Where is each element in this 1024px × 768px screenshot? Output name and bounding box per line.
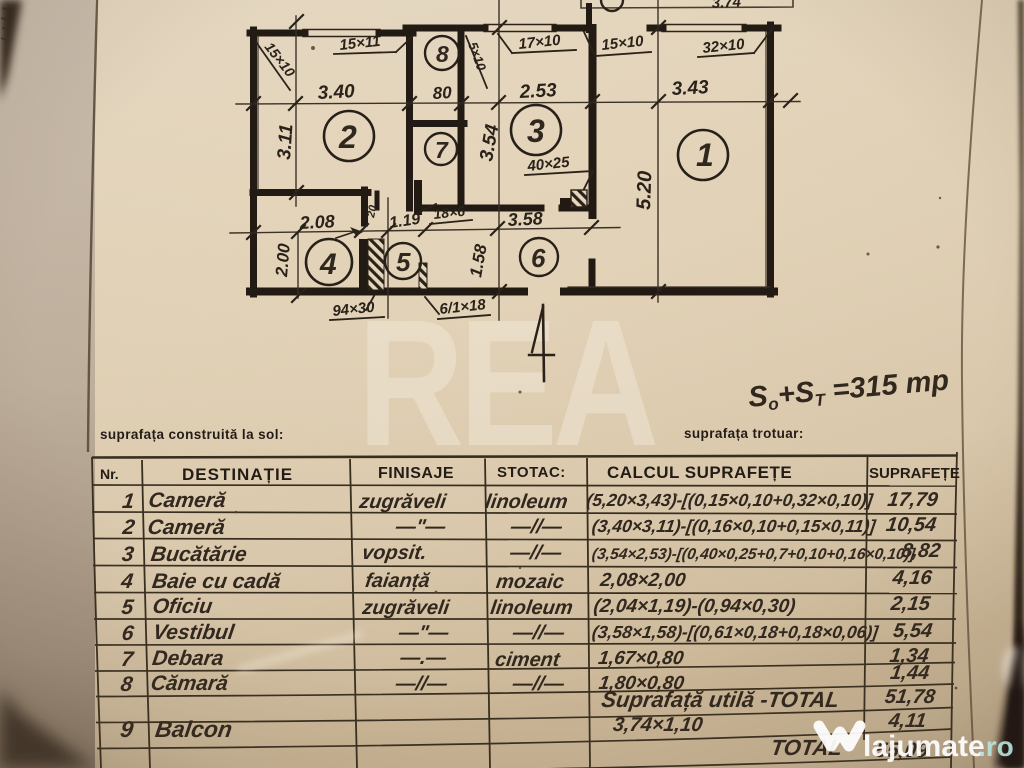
svg-text:lajumate: lajumate bbox=[863, 730, 985, 763]
svg-text:.ro: .ro bbox=[978, 731, 1014, 762]
